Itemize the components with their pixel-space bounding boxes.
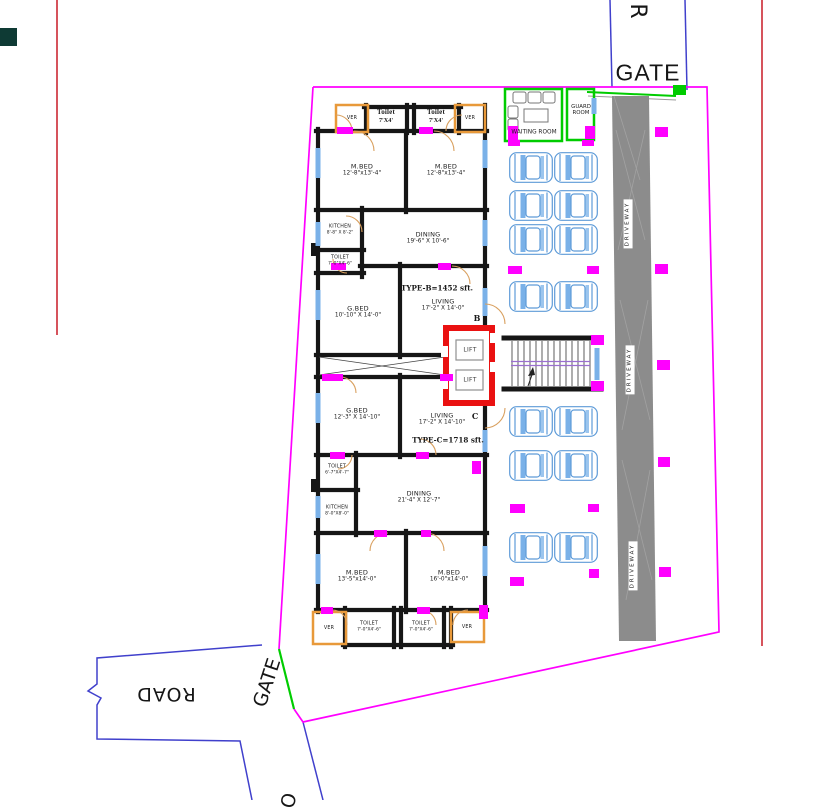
room-label-gbed-b: G.BED 10'-10" X 14'-0" [335,304,381,319]
road-left-label: ROAD [136,681,195,705]
red-survey-lines [57,0,762,646]
guard-room-line2: ROOM [571,110,591,116]
gate-top-label: GATE [616,59,681,88]
room-label-mbed-b1: M.BED 12'-8"x13'-4" [343,162,381,177]
room-label-mbed-b2: M.BED 12'-8"x13'-4" [427,162,465,177]
unit-tag-c: C [472,411,478,421]
stair-treads [512,341,590,386]
room-label-kitchen-b: KITCHEN 8'-8" X 8'-2" [327,224,354,235]
room-label-kitchen-c: KITCHEN 8'-0"X8'-0" [325,505,349,516]
room-label-toilet-top-2: Toilet 7'X4' [427,108,445,125]
corridor-cross [319,357,445,375]
waiting-room-label: WAITING ROOM [511,129,556,136]
stair-direction-arrow [528,367,535,376]
room-label-gbed-c: G.BED 12'-3" X 14'-10" [334,406,380,421]
site-plan: R GATE WAITING ROOM GUARD ROOM VER VER T… [0,0,820,800]
room-label-ver-tl: VER [347,116,357,122]
type-b-area-label: TYPE-B=1452 sft. [401,284,473,293]
room-label-toilet-c: TOILET 6'-7"X4'-7" [325,464,349,475]
waiting-room-furniture [508,92,555,131]
driveway-label-1: DRIVEWAY [624,200,633,249]
room-label-living-b: LIVING 17'-2" X 14'-0" [422,297,465,312]
driveway-label-3: DRIVEWAY [629,542,638,591]
road-right-label: R [623,3,651,18]
room-label-toilet-b: TOILET 7'-0"X4'-6" [328,255,352,266]
room-label-dining-c: DINING 21'-4" X 12'-7" [398,489,441,504]
lift-shaft [441,328,497,403]
room-label-living-c: LIVING 17'-2" X 14'-10" [419,411,465,426]
plan-linework [0,0,820,800]
staircase [504,338,601,389]
room-label-toilet-top-1: Toilet 7'X4' [377,108,395,125]
driveway-label-2: DRIVEWAY [626,346,635,395]
lift-label-1: LIFT [463,346,476,354]
room-label-ver-bl: VER [324,626,334,632]
room-label-mbed-c1: M.BED 13'-5"x14'-0" [338,568,376,583]
room-label-mbed-c2: M.BED 16'-0"x14'-0" [430,568,468,583]
room-label-toilet-bottom-1: TOILET 7'-0"X4'-6" [357,621,381,632]
type-c-area-label: TYPE-C=1718 sft. [412,436,484,445]
room-label-toilet-bottom-2: TOILET 7'-0"X4'-6" [409,621,433,632]
room-label-ver-br: VER [462,625,472,631]
guard-room-label: GUARD ROOM [571,104,591,116]
lift-label-2: LIFT [463,376,476,384]
dark-corner-patch [0,28,17,46]
room-label-dining-b: DINING 19'-6" X 10'-6" [407,230,450,245]
room-label-ver-tr: VER [465,116,475,122]
unit-tag-b: B [474,313,481,323]
bottom-road [88,645,323,800]
